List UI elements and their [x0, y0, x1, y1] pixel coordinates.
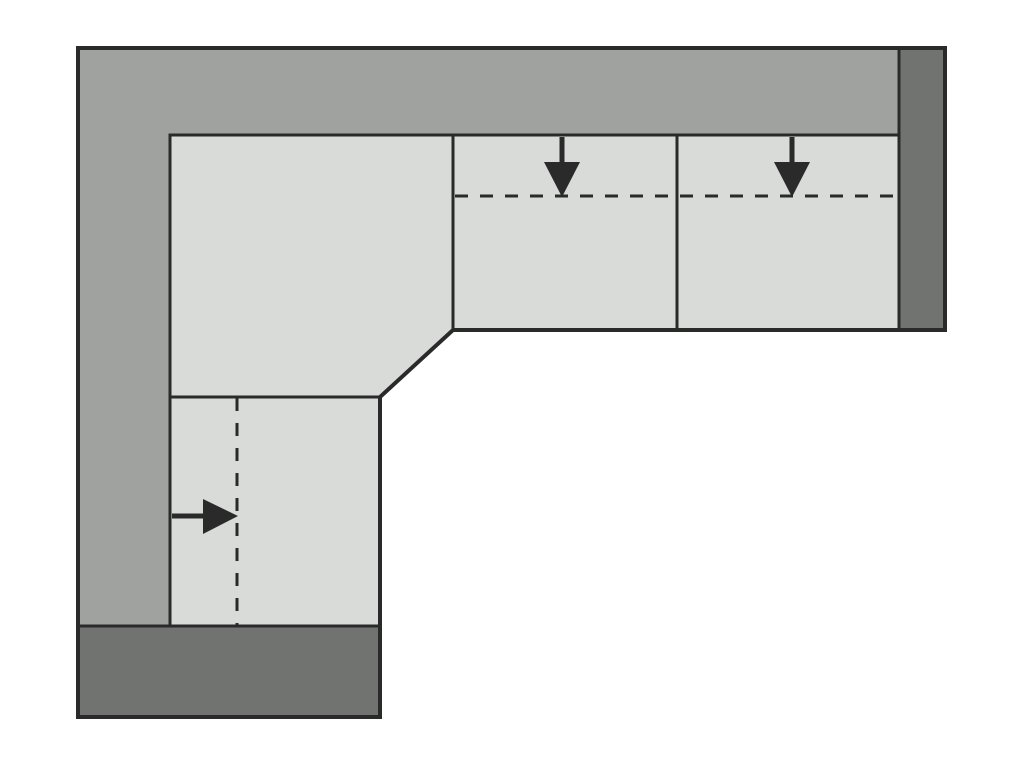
right-armrest	[899, 48, 945, 330]
corner-seat	[170, 135, 453, 397]
bottom-armrest	[78, 626, 380, 717]
sofa-schematic-svg	[0, 0, 1024, 768]
bottom-seat	[170, 397, 380, 626]
sofa-schematic	[0, 0, 1024, 768]
